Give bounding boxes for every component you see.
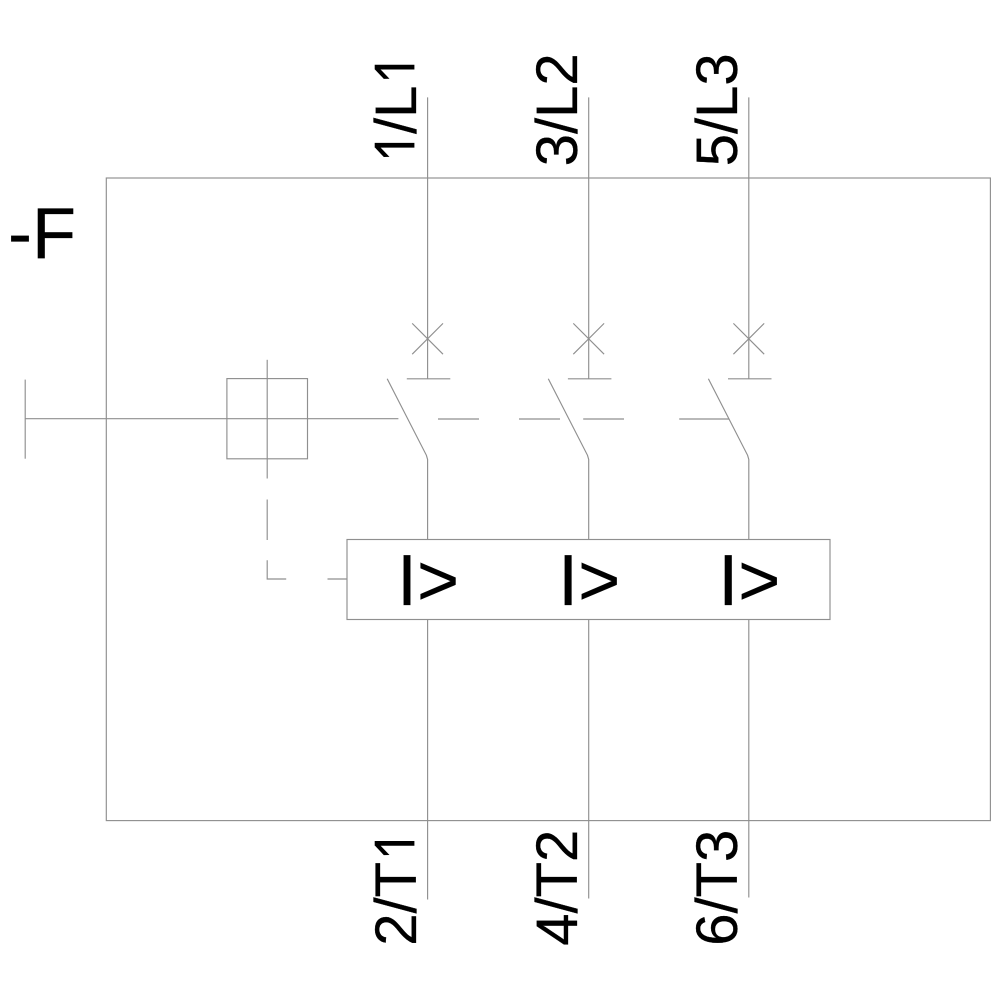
svg-text:/T: /T: [364, 862, 429, 914]
svg-text:-F: -F: [8, 194, 76, 274]
svg-text:5/L3: 5/L3: [685, 53, 750, 166]
svg-text:6/T3: 6/T3: [685, 830, 750, 946]
svg-text:I>: I>: [558, 541, 620, 621]
svg-text:2: 2: [364, 914, 429, 946]
svg-text:4/T2: 4/T2: [525, 830, 590, 946]
svg-text:/L: /L: [364, 86, 429, 134]
svg-text:3/L2: 3/L2: [525, 53, 590, 166]
svg-text:I>: I>: [397, 541, 459, 621]
svg-text:I>: I>: [718, 541, 780, 621]
